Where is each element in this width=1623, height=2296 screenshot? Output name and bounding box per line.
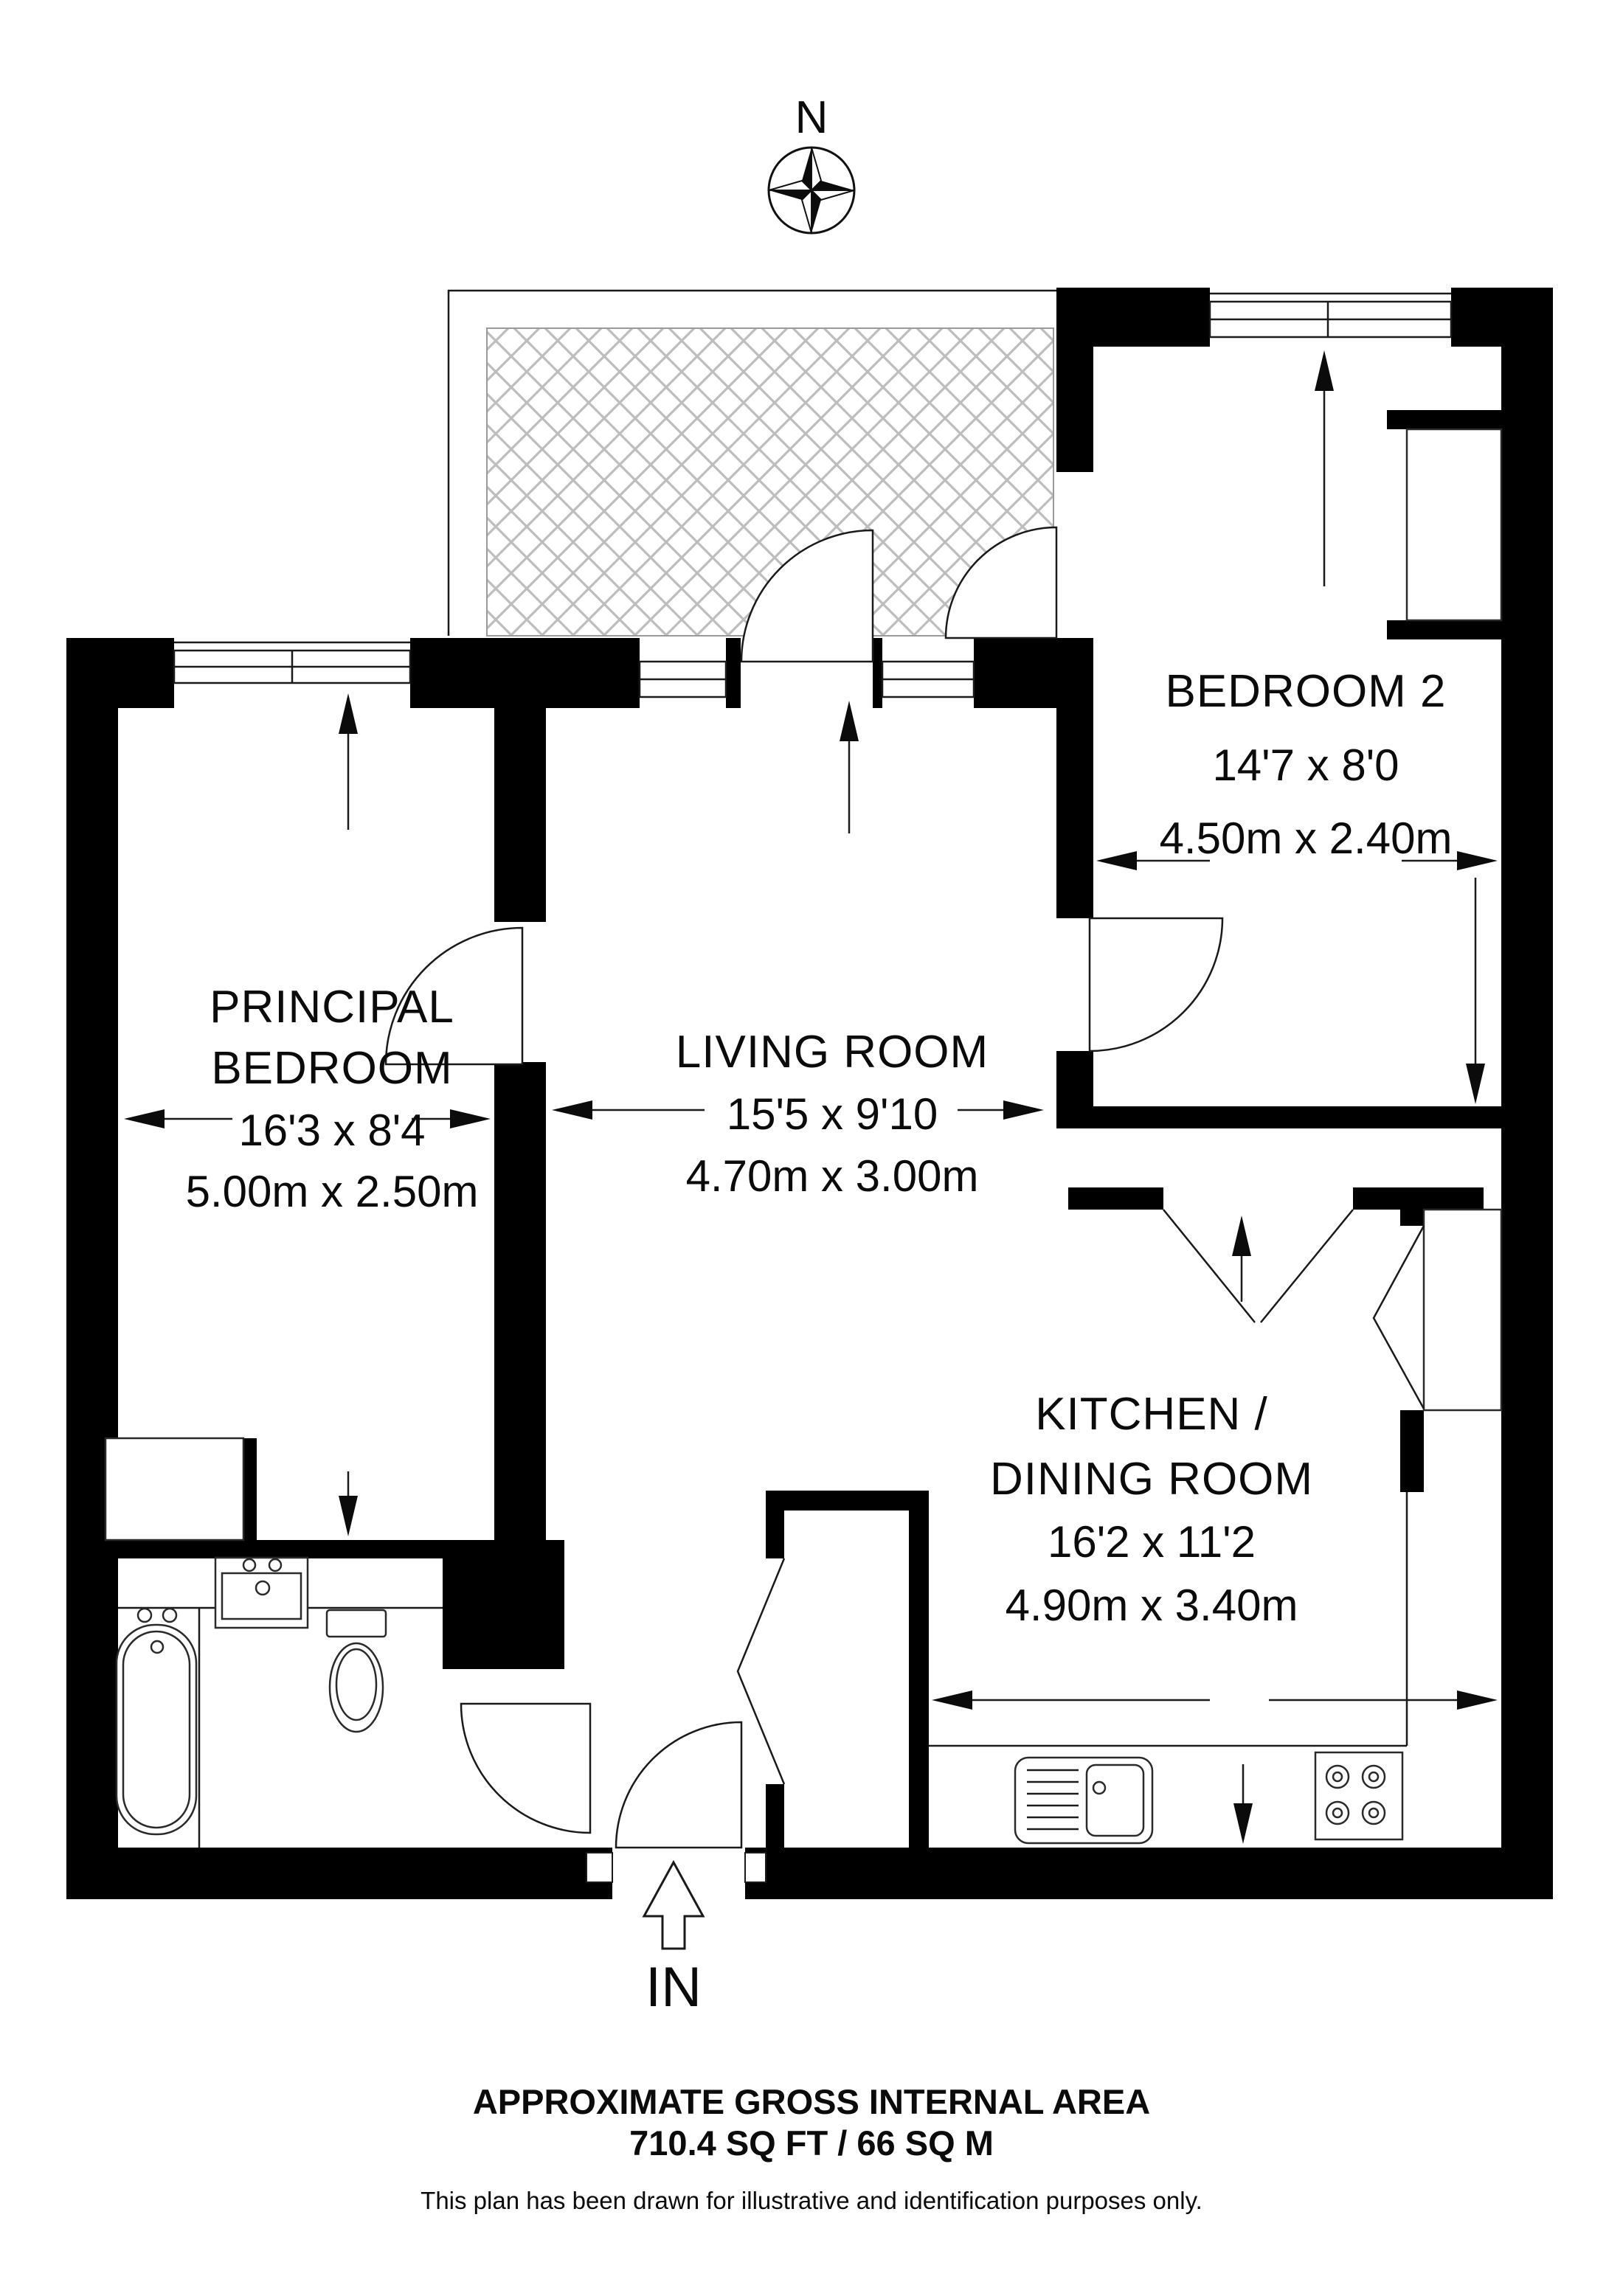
lr-name: LIVING ROOM xyxy=(676,1027,989,1078)
window-principal-bedroom xyxy=(174,642,410,683)
wall-bed2-left-mid xyxy=(1056,708,1093,918)
footer: APPROXIMATE GROSS INTERNAL AREA 710.4 SQ… xyxy=(421,2082,1202,2214)
wall-pb-top-right xyxy=(410,638,450,708)
door-bed2 xyxy=(1090,918,1222,1051)
lr-metric: 4.70m x 3.00m xyxy=(686,1151,979,1201)
pb-wardrobe xyxy=(105,1438,243,1540)
label-kitchen-dining: KITCHEN / DINING ROOM 16'2 x 11'2 4.90m … xyxy=(990,1389,1313,1630)
bathroom xyxy=(117,1558,443,1848)
bathtub xyxy=(117,1609,196,1834)
floor-plan-svg: N xyxy=(0,0,1623,2296)
wall-bathroom-right xyxy=(443,1558,564,1669)
hall-closet-doors xyxy=(738,1558,784,1784)
wall-pb-top-left xyxy=(66,638,174,708)
room-labels: BEDROOM 2 14'7 x 8'0 4.50m x 2.40m PRINC… xyxy=(186,666,1453,1630)
wall-pb-right-lower xyxy=(494,1062,546,1541)
wall-bed2-top-right xyxy=(1451,288,1501,347)
kitchen-name-1: KITCHEN / xyxy=(1035,1389,1268,1440)
pb-name-1: PRINCIPAL xyxy=(210,982,454,1033)
footer-disclaimer: This plan has been drawn for illustrativ… xyxy=(421,2187,1202,2214)
wall-pb-wardrobe-strip xyxy=(243,1438,257,1541)
toilet xyxy=(327,1610,386,1732)
footer-area-value: 710.4 SQ FT / 66 SQ M xyxy=(629,2123,994,2163)
entry-notch-right xyxy=(745,1853,766,1882)
kitchen-metric: 4.90m x 3.40m xyxy=(1006,1581,1298,1630)
wall-lr-top-b xyxy=(974,638,1093,708)
floor-plan-page: N xyxy=(0,0,1623,2296)
wall-bed2-closet-top xyxy=(1387,410,1501,429)
window-terrace-right xyxy=(882,662,974,697)
label-bedroom-2: BEDROOM 2 14'7 x 8'0 4.50m x 2.40m xyxy=(1160,666,1453,863)
wall-bottom-left xyxy=(66,1848,612,1899)
bedroom2-imperial: 14'7 x 8'0 xyxy=(1212,741,1399,790)
kitchen-sink xyxy=(1015,1758,1152,1843)
bedroom2-metric: 4.50m x 2.40m xyxy=(1160,814,1453,863)
compass-n-label: N xyxy=(795,92,828,143)
wall-kitchencloset-top-stub xyxy=(1400,1210,1424,1226)
bedroom2-name: BEDROOM 2 xyxy=(1165,666,1446,717)
entrance-arrow-icon xyxy=(644,1862,703,1949)
kitchen-closet xyxy=(1424,1210,1501,1410)
wall-lr-top-jamb2 xyxy=(726,638,741,708)
kitchen-closet-doors xyxy=(1374,1226,1424,1409)
wall-pb-right-upper xyxy=(494,708,546,922)
entrance-label: IN xyxy=(646,1956,702,2019)
wall-lr-top-jamb1 xyxy=(622,638,640,708)
compass: N xyxy=(769,92,854,233)
pb-metric: 5.00m x 2.50m xyxy=(186,1167,479,1216)
pb-imperial: 16'3 x 8'4 xyxy=(238,1106,425,1155)
wall-bottom-right xyxy=(745,1848,1553,1899)
entrance: IN xyxy=(644,1862,703,2019)
wall-hallcloset-top xyxy=(766,1491,929,1511)
wall-right-exterior xyxy=(1501,288,1553,1899)
wall-bed2-closet-bottom xyxy=(1387,620,1501,639)
wall-kitchen-top-a xyxy=(1068,1187,1163,1210)
wall-kitchencloset-bottom-stub xyxy=(1400,1410,1424,1492)
wall-bed2-bottom xyxy=(1056,1106,1501,1128)
wall-lr-top-a xyxy=(449,638,622,708)
kitchen-imperial: 16'2 x 11'2 xyxy=(1048,1517,1256,1567)
window-terrace-left xyxy=(640,662,726,697)
door-bathroom xyxy=(461,1704,590,1833)
kitchen-entry-door-right xyxy=(1261,1210,1353,1322)
wall-left-exterior xyxy=(66,638,118,1899)
kitchen-name-2: DINING ROOM xyxy=(990,1454,1313,1505)
wall-hallcloset-left-top xyxy=(766,1511,784,1558)
wall-kitchen-top-b xyxy=(1353,1187,1484,1210)
window-bedroom-2 xyxy=(1210,294,1451,337)
wall-bed2-left-upper xyxy=(1056,288,1093,472)
lr-imperial: 15'5 x 9'10 xyxy=(727,1089,938,1139)
label-principal-bedroom: PRINCIPAL BEDROOM 16'3 x 8'4 5.00m x 2.5… xyxy=(186,982,479,1216)
pb-name-2: BEDROOM xyxy=(211,1043,452,1094)
wall-pb-bottom xyxy=(118,1540,564,1558)
footer-area-title: APPROXIMATE GROSS INTERNAL AREA xyxy=(473,2082,1150,2121)
wall-hallcloset-right xyxy=(909,1511,929,1848)
wall-lr-top-jamb3 xyxy=(873,638,882,708)
hob xyxy=(1315,1752,1402,1839)
bed2-closet xyxy=(1407,429,1501,620)
label-living-room: LIVING ROOM 15'5 x 9'10 4.70m x 3.00m xyxy=(676,1027,989,1201)
bathroom-sink xyxy=(215,1558,308,1628)
wall-hallcloset-left-bottom xyxy=(766,1784,784,1848)
door-entry xyxy=(616,1722,741,1848)
entry-notch-left xyxy=(586,1853,612,1882)
